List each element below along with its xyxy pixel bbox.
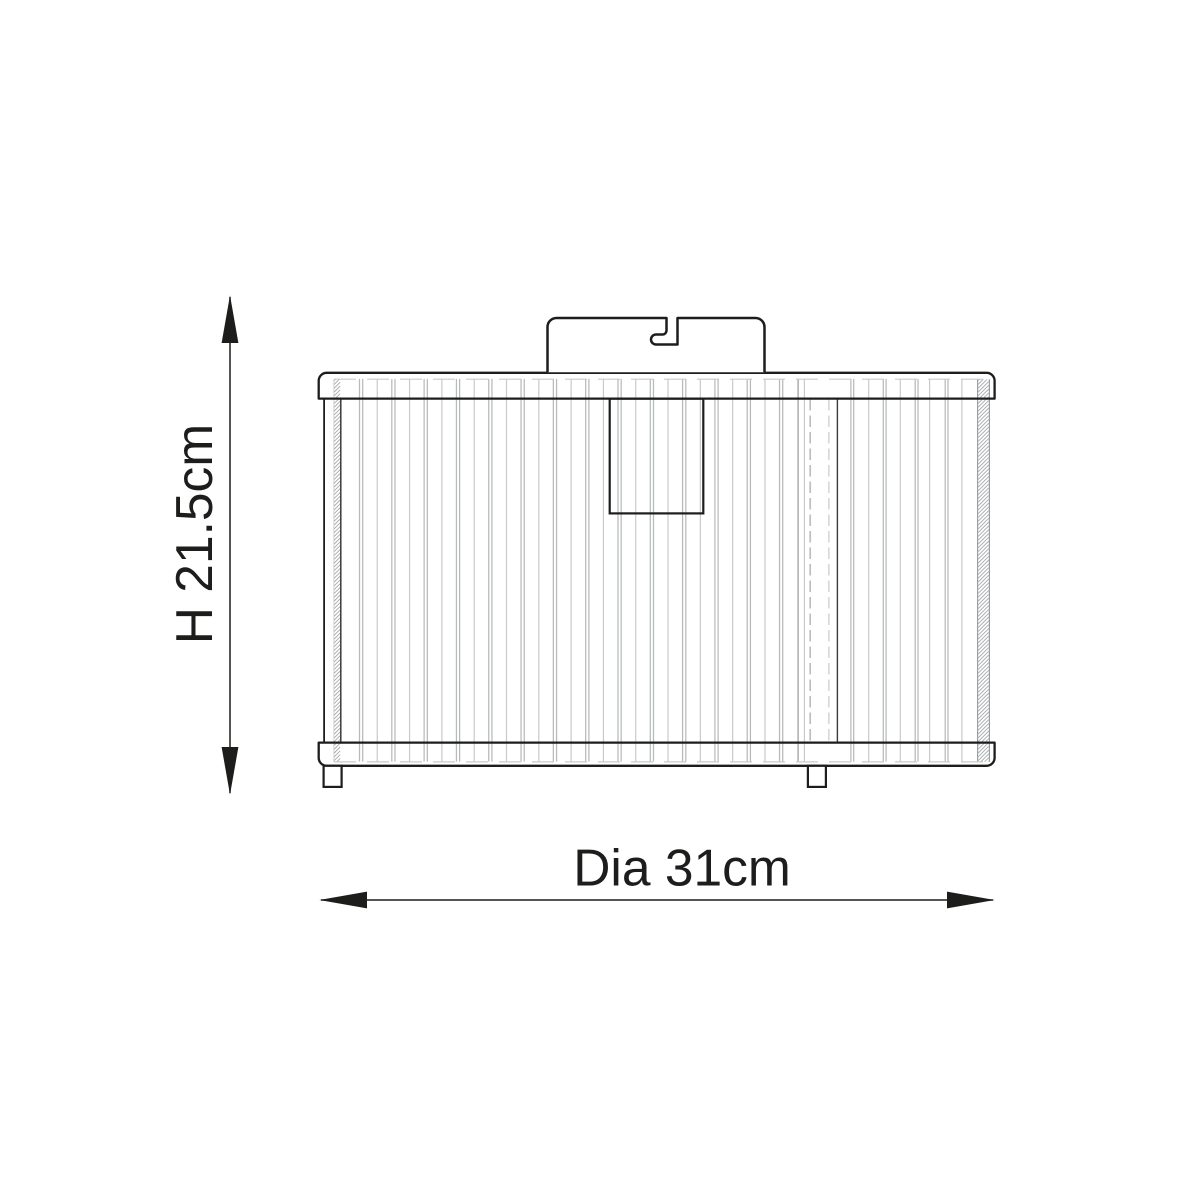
svg-text:Dia 31cm: Dia 31cm <box>573 839 791 897</box>
svg-text:H 21.5cm: H 21.5cm <box>165 424 223 644</box>
